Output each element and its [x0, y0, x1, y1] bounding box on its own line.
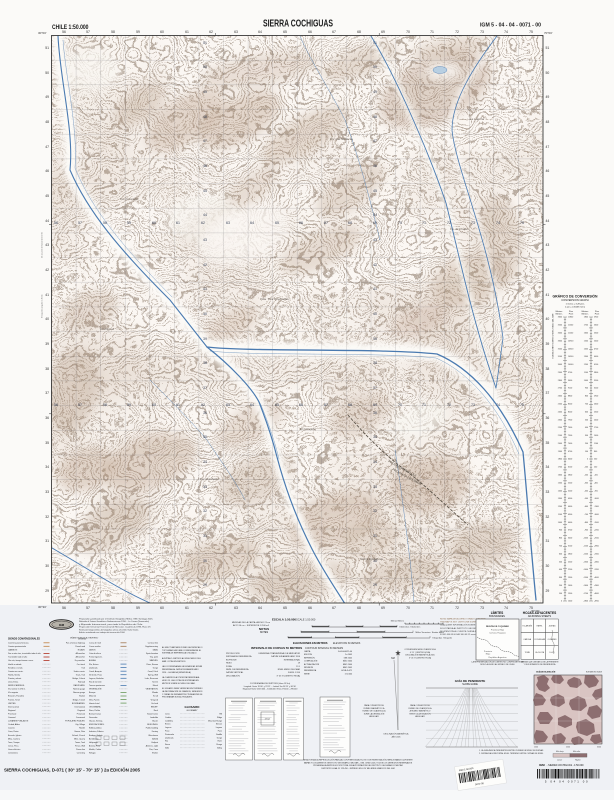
svg-text:61: 61 — [176, 403, 180, 407]
svg-text:56: 56 — [62, 30, 66, 34]
svg-text:PARA CONVERTIR DE: PARA CONVERTIR DE — [410, 704, 430, 707]
svg-text:1000: 1000 — [584, 380, 588, 382]
svg-text:4700: 4700 — [594, 348, 598, 350]
svg-text:-500: -500 — [584, 498, 588, 500]
svg-text:27 km: 27 km — [265, 719, 271, 721]
svg-text:ACEPTADO: METROS AL NIVEL MEDI: ACEPTADO: METROS AL NIVEL MEDIO DEL — [162, 657, 201, 660]
svg-text:3400: 3400 — [558, 333, 562, 335]
svg-text:Industria, Fábrica: Industria, Fábrica — [89, 730, 105, 733]
svg-text:-1300: -1300 — [583, 561, 588, 563]
svg-text:10600: 10600 — [568, 348, 573, 350]
svg-text:11800: 11800 — [568, 317, 573, 319]
svg-text:500: 500 — [585, 419, 588, 421]
svg-text:LUGARES POBLADOS:: LUGARES POBLADOS: — [8, 720, 29, 723]
svg-text:11200: 11200 — [568, 333, 573, 335]
svg-text:DECLINACIÓN MAGNÉTICA 2005: DECLINACIÓN MAGNÉTICA 2005 — [405, 654, 434, 657]
svg-text:67: 67 — [332, 30, 336, 34]
svg-text:Vía angosta: Vía angosta — [8, 691, 19, 694]
svg-text:58: 58 — [111, 30, 115, 34]
svg-text:10900: 10900 — [568, 340, 573, 342]
svg-text:Metros Meters: Metros Meters — [391, 620, 404, 623]
svg-text:75: 75 — [520, 221, 524, 225]
svg-text:Valle: Valle — [165, 748, 169, 750]
svg-text:2a 2005: 2a 2005 — [345, 654, 352, 656]
svg-text:Punto trigonom.: Punto trigonom. — [89, 656, 103, 659]
svg-text:46: 46 — [203, 164, 207, 168]
svg-text:70: 70 — [398, 221, 402, 225]
svg-text:La Laguna: La Laguna — [470, 117, 485, 121]
svg-text:Provincia Elqui: Provincia Elqui — [491, 629, 505, 631]
svg-text:3200: 3200 — [558, 348, 562, 350]
svg-text:400: 400 — [585, 427, 588, 429]
svg-text:REFERIDAS AL DATUM SUDAMERICAN: REFERIDAS AL DATUM SUDAMERICANO — [162, 668, 199, 671]
svg-text:2000: 2000 — [594, 419, 598, 421]
svg-text:AGUAS:: AGUAS: — [89, 659, 97, 662]
svg-text:NOTES: NOTES — [260, 631, 269, 634]
svg-text:LÍMITES:: LÍMITES: — [8, 702, 16, 705]
svg-text:Provincial: Provincial — [77, 713, 86, 716]
svg-text:Lower: Lower — [557, 759, 563, 762]
svg-text:IGM- SIERRA COCHIGUAS - 1:50.0: IGM- SIERRA COCHIGUAS - 1:50.000 — [539, 763, 584, 767]
svg-text:2100: 2100 — [558, 435, 562, 437]
svg-text:-700: -700 — [584, 514, 588, 516]
svg-text:Scrub: Scrub — [153, 695, 158, 698]
svg-text:Cerro: Cerro — [165, 713, 170, 716]
svg-text:-1000: -1000 — [583, 538, 588, 540]
svg-text:Quebrada: Quebrada — [89, 666, 98, 669]
svg-text:Rock: Rock — [154, 710, 158, 712]
svg-text:DEPÓSITO LEGAL N° 123.456 – IM: DEPÓSITO LEGAL N° 123.456 – IMPRESO EN L… — [321, 767, 395, 770]
svg-text:Portezuelo: Portezuelo — [165, 733, 174, 736]
svg-text:31: 31 — [546, 539, 550, 543]
svg-text:62: 62 — [209, 606, 213, 610]
svg-text:Internacional: Internacional — [8, 705, 19, 708]
svg-text:Magnitud: Norte 6.619.000 – 6.: Magnitud: Norte 6.619.000 – 6.646.000 / … — [243, 688, 298, 691]
svg-text:Línea eléctrica: Línea eléctrica — [8, 748, 21, 751]
svg-text:1000: 1000 — [568, 601, 572, 603]
svg-text:2900: 2900 — [594, 396, 598, 398]
svg-text:900: 900 — [585, 388, 588, 390]
svg-text:30°00': 30°00' — [38, 31, 47, 35]
svg-text:1700: 1700 — [558, 467, 562, 469]
svg-text:DECLINACIÓN: DECLINACIÓN — [226, 674, 240, 677]
svg-text:65: 65 — [275, 221, 279, 225]
svg-text:PARA CONVERTIR DE: PARA CONVERTIR DE — [364, 704, 384, 707]
svg-text:Restitución fotogramétrica de: Restitución fotogramétrica de fotografía… — [79, 628, 139, 631]
svg-text:Antenna, Light: Antenna, Light — [146, 744, 159, 747]
svg-text:-1100: -1100 — [583, 546, 588, 548]
svg-text:RESTE LA DESVIACIÓN: RESTE LA DESVIACIÓN — [409, 712, 431, 715]
svg-text:71: 71 — [422, 403, 426, 407]
svg-text:700: 700 — [559, 546, 562, 548]
svg-text:Transitable todo el año: Transitable todo el año — [8, 656, 27, 659]
svg-text:1200: 1200 — [584, 364, 588, 366]
svg-text:WATERS:: WATERS: — [150, 659, 159, 662]
svg-text:Lagoon: Lagoon — [216, 727, 222, 729]
svg-text:CONVERGENCIA DE CUADRÍCULA: CONVERGENCIA DE CUADRÍCULA — [404, 648, 436, 651]
svg-text:Longitud: Oeste 70°00´ y 70°15: Longitud: Oeste 70°00´ y 70°15´ – Latitu… — [244, 685, 297, 688]
svg-text:11500: 11500 — [568, 325, 573, 327]
svg-text:34: 34 — [203, 460, 207, 464]
svg-text:Helipuerto: Helipuerto — [89, 741, 98, 744]
svg-text:FONO 460 68 00 FAX 460 68 12: FONO 460 68 00 FAX 460 68 12 www.igm.cl — [440, 633, 482, 636]
svg-text:1. LA GUÍA INDICA PENDIENTES E: 1. LA GUÍA INDICA PENDIENTES ENTRE CURVA… — [479, 749, 544, 752]
svg-text:39: 39 — [45, 342, 49, 346]
svg-text:NIVEL MEDIO DEL MAR: NIVEL MEDIO DEL MAR — [278, 668, 301, 671]
svg-text:PROGRAMAR SUS ACTIVIDADES.: PROGRAMAR SUS ACTIVIDADES. — [162, 696, 193, 699]
svg-text:34: 34 — [373, 460, 377, 464]
svg-text:DATUM VERTICAL: DATUM VERTICAL — [226, 671, 244, 674]
svg-text:ELEVACIONES EN METROS: ELEVACIONES EN METROS — [293, 641, 328, 645]
svg-text:48: 48 — [373, 115, 377, 119]
svg-text:39: 39 — [203, 337, 207, 341]
svg-text:1600: 1600 — [584, 333, 588, 335]
svg-text:-1500: -1500 — [583, 577, 588, 579]
svg-text:-400: -400 — [584, 490, 588, 492]
svg-text:EDICIÓN: EDICIÓN — [304, 653, 313, 656]
svg-text:50: 50 — [203, 65, 207, 69]
svg-text:SLOPE GUIDE: SLOPE GUIDE — [462, 684, 478, 686]
svg-text:64: 64 — [258, 30, 262, 34]
svg-text:33: 33 — [203, 485, 207, 489]
svg-text:Refugio: Refugio — [89, 753, 96, 755]
svg-text:51: 51 — [546, 46, 550, 50]
svg-text:GUÍA DE PENDIENTE: GUÍA DE PENDIENTE — [455, 678, 485, 683]
svg-text:Más bajo: Más bajo — [556, 751, 564, 753]
svg-text:Kiloyardas Kiloyards: Kiloyardas Kiloyards — [433, 637, 452, 640]
svg-text:46: 46 — [546, 169, 550, 173]
svg-text:GRÁFICO DE CONVERSIÓN: GRÁFICO DE CONVERSIÓN — [552, 294, 598, 299]
svg-text:-1200: -1200 — [583, 553, 588, 555]
svg-text:1800: 1800 — [584, 317, 588, 319]
svg-text:Trail: Trail — [81, 666, 85, 669]
svg-text:73: 73 — [471, 221, 475, 225]
svg-text:61: 61 — [176, 221, 180, 225]
svg-text:All weather: All weather — [76, 656, 86, 659]
svg-text:56: 56 — [62, 606, 66, 610]
svg-text:ACTUALIZACIÓN: ACTUALIZACIÓN — [304, 663, 320, 666]
svg-text:10300: 10300 — [568, 356, 573, 358]
svg-text:Sand, Dunes: Sand, Dunes — [147, 714, 158, 716]
svg-text:4000: 4000 — [568, 522, 572, 524]
svg-text:Glacier: Glacier — [152, 720, 158, 723]
svg-text:-2800: -2800 — [594, 546, 599, 548]
svg-text:2900: 2900 — [558, 372, 562, 374]
svg-text:700: 700 — [585, 404, 588, 406]
svg-text:Casa, Ruina: Casa, Ruina — [8, 731, 19, 733]
svg-text:Laguna: Laguna — [165, 727, 172, 729]
svg-text:0: 0 — [561, 601, 562, 603]
svg-text:REGIÓN DE COQUIMBO: REGIÓN DE COQUIMBO — [486, 625, 509, 628]
svg-text:400: 400 — [559, 569, 562, 571]
svg-text:74: 74 — [496, 403, 500, 407]
svg-text:Canal, Acequia: Canal, Acequia — [89, 670, 103, 673]
svg-text:Gorge: Gorge — [217, 736, 222, 739]
svg-text:Meters: Meters — [556, 312, 564, 315]
svg-text:BOUNDARIES: BOUNDARIES — [489, 615, 505, 618]
svg-text:2800: 2800 — [568, 553, 572, 555]
svg-text:y Elipsoide Internacional, par: y Elipsoide Internacional, para toda la … — [79, 623, 143, 626]
svg-text:Antena, Faro: Antena, Faro — [89, 744, 100, 747]
svg-text:ELIPSOIDE: ELIPSOIDE — [226, 659, 237, 661]
svg-text:-100: -100 — [594, 475, 598, 477]
svg-text:38: 38 — [203, 361, 207, 365]
svg-text:Torre, Tanque: Torre, Tanque — [8, 741, 20, 744]
svg-text:Feet: Feet — [569, 312, 574, 315]
svg-text:Cordón: Cordón — [165, 716, 171, 719]
svg-text:48: 48 — [203, 115, 207, 119]
svg-text:Shelter: Shelter — [152, 752, 158, 755]
svg-text:NM: NM — [391, 657, 395, 660]
svg-text:ELEVATIONS IN METERS: ELEVATIONS IN METERS — [333, 642, 361, 645]
svg-text:72: 72 — [455, 30, 459, 34]
svg-text:AÑO 2004: AÑO 2004 — [343, 663, 352, 666]
svg-text:Marsh: Marsh — [153, 684, 158, 687]
svg-text:30: 30 — [546, 564, 550, 568]
svg-text:1956 – LA CANOA (VENEZUELA).: 1956 – LA CANOA (VENEZUELA). — [162, 671, 192, 674]
svg-text:City, Village: City, Village — [75, 723, 85, 726]
svg-text:38: 38 — [546, 367, 550, 371]
svg-text:Range: Range — [216, 744, 222, 746]
svg-text:DATUM SUDAMERICANO 1956: DATUM SUDAMERICANO 1956 — [271, 655, 301, 658]
svg-text:República Argentina: República Argentina — [489, 656, 508, 659]
svg-text:Muelle, Caleta: Muelle, Caleta — [89, 748, 102, 751]
svg-text:Viña, Parrón: Viña, Parrón — [89, 698, 99, 701]
svg-text:37: 37 — [203, 386, 207, 390]
svg-text:8200: 8200 — [568, 411, 572, 413]
svg-text:0: 0 — [587, 459, 588, 461]
svg-text:OROGRAFÍA:: OROGRAFÍA: — [89, 705, 101, 708]
svg-text:SIGNOS CONVENCIONALES: SIGNOS CONVENCIONALES — [8, 637, 40, 641]
svg-text:Pass: Pass — [218, 731, 222, 733]
svg-text:-1900: -1900 — [594, 522, 599, 524]
svg-text:Under constr.: Under constr. — [74, 670, 86, 673]
svg-text:Bosque: Bosque — [89, 692, 95, 694]
svg-text:47: 47 — [373, 139, 377, 143]
svg-text:7000: 7000 — [568, 443, 572, 445]
svg-text:Co. Las Mollacas: Co. Las Mollacas — [330, 137, 354, 141]
svg-text:Cochiguaz: Cochiguaz — [100, 327, 115, 331]
svg-text:56: 56 — [54, 403, 58, 407]
svg-text:Sendero o senda: Sendero o senda — [8, 666, 23, 669]
svg-text:-3700: -3700 — [594, 569, 599, 571]
svg-text:71: 71 — [430, 606, 434, 610]
svg-text:Dos o más vías, transitable to: Dos o más vías, transitable todo el año — [8, 652, 41, 655]
svg-text:61: 61 — [185, 30, 189, 34]
svg-text:32: 32 — [373, 509, 377, 513]
svg-text:Paso: Paso — [165, 731, 169, 733]
svg-text:37: 37 — [546, 391, 550, 395]
svg-text:59: 59 — [136, 606, 140, 610]
svg-text:49: 49 — [373, 90, 377, 94]
svg-text:29: 29 — [373, 583, 377, 587]
svg-text:RAILROADS:: RAILROADS: — [74, 684, 86, 687]
svg-text:SCALE 1:50.000: SCALE 1:50.000 — [296, 618, 316, 622]
svg-text:Spot elevation: Spot elevation — [146, 652, 158, 655]
svg-text:Ciudad, Aldea: Ciudad, Aldea — [8, 723, 21, 726]
svg-text:El esquema angular es S.E.Z.: El esquema angular es S.E.Z. — [42, 294, 44, 318]
svg-text:LAS COORDENADAS GEOGRÁFICAS ES: LAS COORDENADAS GEOGRÁFICAS ESTÁN — [162, 665, 203, 668]
svg-text:3° 05´ E (CENTRO HOJA): 3° 05´ E (CENTRO HOJA) — [277, 674, 301, 677]
svg-text:44: 44 — [45, 219, 49, 223]
svg-text:GUÍA DE ELEVACIÓN: GUÍA DE ELEVACIÓN — [536, 671, 556, 674]
svg-text:Narrow gauge: Narrow gauge — [73, 691, 85, 694]
svg-text:Co. Colorado: Co. Colorado — [120, 197, 138, 201]
svg-text:De acuerdo al Datum W.G.S. 84: De acuerdo al Datum W.G.S. 84 — [41, 232, 44, 258]
svg-text:THIS MAP IS NOT LIGHT LINE SCH: THIS MAP IS NOT LIGHT LINE SCHEME — [440, 621, 479, 624]
svg-text:5000: 5000 — [594, 340, 598, 342]
svg-text:-100: -100 — [584, 467, 588, 469]
svg-text:-700: -700 — [594, 490, 598, 492]
svg-text:35: 35 — [546, 441, 550, 445]
svg-text:Power line: Power line — [76, 748, 85, 751]
svg-text:ADJOINING SHEETS: ADJOINING SHEETS — [528, 615, 552, 618]
svg-text:Glaciar, Ventisq.: Glaciar, Ventisq. — [89, 720, 103, 723]
svg-text:-1800: -1800 — [583, 601, 588, 603]
svg-text:-4900: -4900 — [594, 601, 599, 603]
svg-text:Torrent: Torrent — [152, 681, 158, 684]
svg-text:3600: 3600 — [558, 317, 562, 319]
svg-text:67: 67 — [332, 606, 336, 610]
svg-text:Bridge, Tunnel: Bridge, Tunnel — [73, 698, 86, 701]
svg-text:Puente y alcant.: Puente y alcant. — [8, 677, 22, 680]
svg-text:Co. El Chape: Co. El Chape — [450, 227, 468, 231]
svg-text:Pan american highway: Pan american highway — [66, 642, 85, 645]
svg-text:LA OLLITA: LA OLLITA — [535, 651, 544, 654]
svg-text:63: 63 — [226, 221, 230, 225]
svg-text:30°30': 30°30' — [38, 605, 47, 609]
svg-text:Comunal: Comunal — [8, 717, 16, 719]
svg-text:9400: 9400 — [568, 380, 572, 382]
svg-text:IGM: IGM — [59, 623, 65, 627]
svg-text:1300: 1300 — [568, 593, 572, 595]
svg-text:4300: 4300 — [568, 514, 572, 516]
svg-text:MODO ALGUNO AL ESTADO DE CHILE: MODO ALGUNO AL ESTADO DE CHILE — [480, 663, 515, 666]
svg-text:MEDIDAS DE LA CARTA: ANCHO 74: MEDIDAS DE LA CARTA: ANCHO 74 cm — [232, 621, 270, 624]
svg-text:AL EFECTUAR MEDICIONES GEODÉSI: AL EFECTUAR MEDICIONES GEODÉSICAS O — [162, 646, 203, 649]
svg-text:CHILE 1:50.000: CHILE 1:50.000 — [52, 24, 89, 31]
svg-text:-400: -400 — [594, 482, 598, 484]
svg-text:2800: 2800 — [558, 380, 562, 382]
svg-text:TULAHUÉN: TULAHUÉN — [522, 624, 532, 627]
svg-text:3800: 3800 — [594, 372, 598, 374]
svg-text:19 J: 19 J — [296, 666, 300, 668]
svg-text:41: 41 — [45, 293, 49, 297]
svg-text:SIERRA COCHIGUAS: SIERRA COCHIGUAS — [263, 19, 333, 30]
svg-text:1500: 1500 — [534, 747, 538, 749]
svg-text:A RUMBO MAGNÉTICO: A RUMBO MAGNÉTICO — [410, 710, 431, 713]
svg-text:9100: 9100 — [568, 388, 572, 390]
svg-text:2200: 2200 — [568, 569, 572, 571]
svg-text:40: 40 — [45, 317, 49, 321]
svg-text:Vía normal: 1.676 m.: Vía normal: 1.676 m. — [8, 688, 26, 691]
svg-text:49: 49 — [45, 95, 49, 99]
svg-text:66: 66 — [308, 606, 312, 610]
svg-text:Y OBRAS DE INFRAESTRUCTURA ANT: Y OBRAS DE INFRAESTRUCTURA ANTES DE — [162, 693, 203, 696]
svg-text:Mountain Range: Mountain Range — [208, 719, 222, 722]
svg-text:Regional: Regional — [8, 710, 16, 712]
svg-text:66: 66 — [308, 30, 312, 34]
svg-text:4900: 4900 — [568, 498, 572, 500]
svg-text:-200: -200 — [584, 475, 588, 477]
svg-text:Huerto frutal: Huerto frutal — [89, 702, 100, 705]
svg-text:800: 800 — [559, 538, 562, 540]
svg-text:900: 900 — [559, 530, 562, 532]
svg-text:47: 47 — [45, 145, 49, 149]
svg-text:59: 59 — [127, 221, 131, 225]
svg-text:Feet: Feet — [595, 312, 600, 315]
svg-text:1 metro = 3.28 pies: 1 metro = 3.28 pies — [566, 303, 586, 306]
svg-text:2300: 2300 — [594, 411, 598, 413]
svg-text:Terreno pantanoso: Terreno pantanoso — [89, 684, 105, 687]
svg-text:10000: 10000 — [568, 364, 573, 366]
svg-text:-4300: -4300 — [594, 585, 599, 587]
svg-text:LA INFORMACIÓN DE CAMINOS, SEN: LA INFORMACIÓN DE CAMINOS, SENDEROS — [162, 690, 203, 693]
svg-text:Co. del Medio: Co. del Medio — [200, 477, 219, 481]
svg-text:42: 42 — [203, 263, 207, 267]
svg-text:30: 30 — [203, 559, 207, 563]
svg-text:7600: 7600 — [568, 427, 572, 429]
svg-text:-3100: -3100 — [594, 553, 599, 555]
svg-text:57: 57 — [86, 606, 90, 610]
svg-text:RELIEF:: RELIEF: — [151, 706, 159, 708]
svg-text:69: 69 — [381, 606, 385, 610]
svg-text:1200: 1200 — [558, 506, 562, 508]
svg-text:33: 33 — [373, 485, 377, 489]
svg-text:8500: 8500 — [568, 404, 572, 406]
svg-text:Communal: Communal — [76, 717, 86, 719]
svg-text:75: 75 — [520, 403, 524, 407]
svg-text:800: 800 — [594, 451, 597, 453]
svg-text:Spring, Well: Spring, Well — [148, 673, 159, 676]
svg-text:68: 68 — [348, 403, 352, 407]
svg-text:1400: 1400 — [584, 348, 588, 350]
svg-text:Huella, Senda: Huella, Senda — [8, 674, 21, 676]
svg-text:66: 66 — [299, 221, 303, 225]
svg-text:42: 42 — [373, 263, 377, 267]
svg-text:5-04-04-0071-00: 5-04-04-0071-00 — [338, 651, 352, 653]
svg-text:-800: -800 — [584, 522, 588, 524]
svg-text:-3400: -3400 — [594, 561, 599, 563]
svg-text:7900: 7900 — [568, 419, 572, 421]
svg-text:200: 200 — [585, 443, 588, 445]
svg-text:58: 58 — [111, 606, 115, 610]
svg-text:CAMINOS:: CAMINOS: — [8, 649, 18, 652]
svg-text:64: 64 — [258, 606, 262, 610]
svg-text:5 04 04 0071 00: 5 04 04 0071 00 — [545, 780, 589, 784]
svg-text:1900: 1900 — [558, 451, 562, 453]
svg-text:METROS SOBRE EL NIVEL DEL MAR.: METROS SOBRE EL NIVEL DEL MAR. — [162, 682, 196, 685]
svg-text:29: 29 — [203, 583, 207, 587]
svg-text:3° 05´ E (CENTRO HOJA): 3° 05´ E (CENTRO HOJA) — [409, 656, 432, 659]
svg-text:Meters: Meters — [582, 312, 590, 315]
svg-text:Vertiente, Pozo: Vertiente, Pozo — [89, 673, 102, 676]
svg-text:65: 65 — [283, 30, 287, 34]
svg-text:47: 47 — [203, 139, 207, 143]
svg-text:EL USUARIO DEBE VERIFICAR EN T: EL USUARIO DEBE VERIFICAR EN TERRENO — [162, 687, 203, 690]
svg-text:5500: 5500 — [568, 482, 572, 484]
svg-text:44: 44 — [546, 219, 550, 223]
svg-text:33: 33 — [546, 490, 550, 494]
svg-text:32: 32 — [546, 515, 550, 519]
svg-text:62: 62 — [201, 403, 205, 407]
svg-text:Referido al Datum Geodésico Su: Referido al Datum Geodésico Sudamericano… — [79, 620, 149, 623]
svg-text:6400: 6400 — [568, 459, 572, 461]
svg-text:MAPAS Y DOCUMENTOS: INSTITUTO: MAPAS Y DOCUMENTOS: INSTITUTO GEOGRÁFICO… — [304, 761, 413, 764]
svg-text:-600: -600 — [584, 506, 588, 508]
svg-text:70: 70 — [406, 30, 410, 34]
svg-text:Hamlet: Hamlet — [79, 727, 85, 730]
